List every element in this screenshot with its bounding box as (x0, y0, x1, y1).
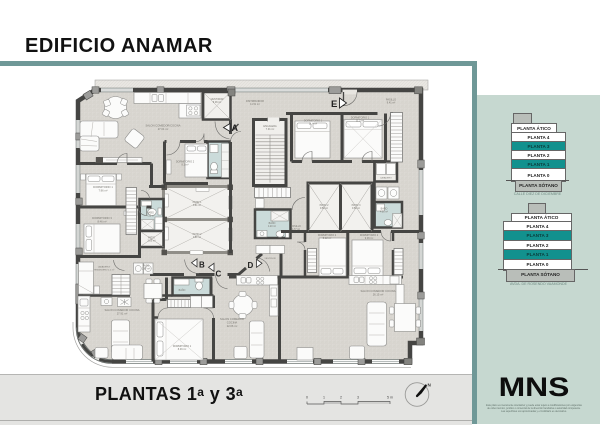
svg-text:9.56 m²: 9.56 m² (320, 207, 328, 210)
svg-text:4.32 m²: 4.32 m² (146, 215, 154, 218)
svg-text:9.56 m²: 9.56 m² (352, 207, 360, 210)
svg-text:8.12 m²: 8.12 m² (323, 237, 332, 240)
svg-text:11.2 m²: 11.2 m² (356, 120, 364, 123)
svg-text:8.1 m²: 8.1 m² (181, 164, 188, 167)
svg-text:4.20 m²: 4.20 m² (268, 225, 276, 228)
svg-text:4.77 m²: 4.77 m² (292, 228, 300, 231)
svg-text:DORMITORIO 3: DORMITORIO 3 (92, 216, 112, 220)
svg-text:SALON COMEDOR/COCINA: SALON COMEDOR/COCINA (145, 124, 180, 128)
svg-text:C: C (216, 270, 222, 279)
svg-text:8.46 m²: 8.46 m² (178, 348, 187, 351)
svg-text:26.15 m²: 26.15 m² (373, 292, 384, 296)
svg-text:9.81 m²: 9.81 m² (193, 236, 201, 239)
svg-text:LAVADERO/: LAVADERO/ (98, 266, 111, 269)
svg-text:2.87 m²: 2.87 m² (142, 268, 150, 271)
svg-text:5.06 m²: 5.06 m² (213, 101, 222, 104)
svg-text:VESTIDOR: VESTIDOR (264, 258, 276, 260)
svg-text:8.46 m²: 8.46 m² (97, 219, 106, 223)
svg-text:11.51 m²: 11.51 m² (250, 103, 260, 106)
svg-text:LAVADERO: LAVADERO (380, 177, 392, 180)
svg-text:TENDEDERO 2.1 m²: TENDEDERO 2.1 m² (94, 268, 115, 271)
svg-text:B: B (199, 261, 205, 270)
svg-text:E: E (331, 99, 337, 110)
svg-text:A: A (232, 123, 239, 133)
svg-text:27.91 m²: 27.91 m² (117, 311, 128, 315)
svg-text:11.4 m²: 11.4 m² (309, 123, 317, 126)
svg-text:4.01 m²: 4.01 m² (380, 211, 388, 214)
svg-text:9.06 m²: 9.06 m² (365, 237, 374, 240)
svg-text:27.04 m²: 27.04 m² (158, 127, 169, 131)
svg-text:SALON COMEDOR: SALON COMEDOR (220, 317, 244, 321)
svg-text:9.81 m²: 9.81 m² (193, 204, 201, 207)
svg-text:COCINA: COCINA (227, 320, 238, 324)
svg-text:D: D (248, 261, 254, 270)
svg-text:9.41 m²: 9.41 m² (387, 102, 396, 105)
svg-text:BAÑO: BAÑO (179, 289, 186, 292)
svg-text:22.06 m²: 22.06 m² (227, 324, 238, 328)
svg-text:3.05 m²: 3.05 m² (147, 240, 155, 243)
svg-text:7.91 m²: 7.91 m² (266, 128, 275, 131)
svg-text:7.96 m²: 7.96 m² (98, 188, 107, 192)
svg-text:SALON COMEDOR COCINA: SALON COMEDOR COCINA (360, 289, 395, 293)
svg-text:SALON COMEDOR COCINA: SALON COMEDOR COCINA (104, 308, 139, 312)
svg-text:DORMITORIO 1: DORMITORIO 1 (93, 185, 113, 189)
